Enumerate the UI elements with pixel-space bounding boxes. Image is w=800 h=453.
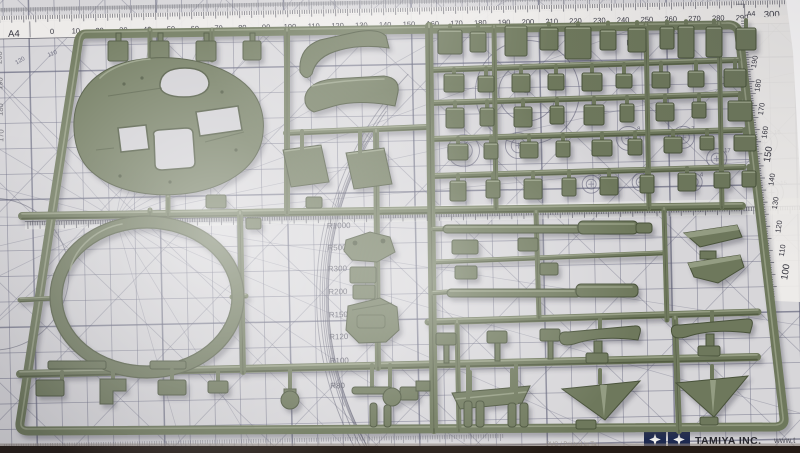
rounded-opening xyxy=(154,128,195,170)
rect-opening xyxy=(196,106,242,136)
part-small-block xyxy=(664,137,682,153)
part-small-block xyxy=(616,74,632,88)
part-small-block xyxy=(448,144,468,160)
part-small-block xyxy=(724,69,746,87)
part-hatch-large xyxy=(346,298,399,343)
part-small-block xyxy=(652,72,670,88)
part-wedge-lower xyxy=(688,255,744,283)
part-small-block xyxy=(512,74,530,92)
part-small-block xyxy=(714,172,730,188)
runner-bar xyxy=(22,206,742,216)
part-small-block xyxy=(620,104,634,122)
part-small-block xyxy=(628,28,646,52)
part-hatch-small xyxy=(344,232,395,262)
part-small-block xyxy=(486,180,500,198)
part-small-block xyxy=(742,171,756,187)
part-small-block xyxy=(582,73,602,91)
part-plate-right xyxy=(346,148,392,189)
part-small-block xyxy=(565,27,591,59)
part-small-block xyxy=(548,74,564,90)
part-small-block xyxy=(350,267,376,283)
part-small-block xyxy=(678,173,696,191)
part-small-block xyxy=(660,27,674,49)
part-small-block xyxy=(416,381,430,391)
part-small-block xyxy=(306,197,322,208)
runner-bar xyxy=(428,312,758,322)
runner-bar xyxy=(433,130,742,139)
part-small-block xyxy=(656,103,674,121)
runner-bar xyxy=(432,60,738,70)
part-small-block xyxy=(470,32,486,52)
part-small-block xyxy=(692,102,706,118)
part-small-block xyxy=(700,136,714,150)
part-small-block xyxy=(518,238,538,251)
part-small-block xyxy=(600,177,618,195)
part-small-block xyxy=(540,28,558,50)
part-turret-ring xyxy=(50,216,244,378)
part-turret-roof xyxy=(74,58,264,195)
part-small-block xyxy=(736,28,756,50)
photo-scene: 50151087172341615 A4 A4 300 010203040506… xyxy=(0,0,800,453)
part-small-block xyxy=(206,195,226,208)
part-small-block xyxy=(455,266,477,279)
part-fender-b xyxy=(305,76,398,112)
part-small-block xyxy=(540,263,558,275)
part-small-block xyxy=(728,101,752,121)
part-fender-a xyxy=(300,31,389,78)
part-ball xyxy=(281,391,299,409)
part-gun-barrel-upper xyxy=(443,221,652,234)
part-small-block xyxy=(628,139,642,155)
part-wing-delta-1 xyxy=(562,370,640,429)
part-small-block xyxy=(734,135,756,151)
sprue-bottom-tabs xyxy=(436,329,560,363)
part-small-block xyxy=(700,251,716,259)
part-small-block xyxy=(562,178,576,196)
part-wedge-upper xyxy=(684,225,742,247)
square-opening xyxy=(118,125,149,152)
model-sprue xyxy=(0,0,800,453)
part-small-block xyxy=(556,141,570,157)
part-small-block xyxy=(520,142,538,158)
part-small-block xyxy=(484,143,498,159)
part-wing-anvil-2 xyxy=(671,312,752,356)
part-small-block xyxy=(353,285,375,299)
part-small-block xyxy=(478,76,494,92)
part-small-block xyxy=(480,108,494,126)
part-small-block xyxy=(600,30,616,50)
part-small-block xyxy=(514,107,532,127)
part-small-block xyxy=(592,140,612,156)
part-ball-joint xyxy=(352,365,418,427)
part-small-block xyxy=(452,240,478,254)
part-plate-left xyxy=(283,145,329,187)
part-small-block xyxy=(446,108,464,128)
hatch-opening xyxy=(160,68,209,97)
part-small-block xyxy=(688,71,704,87)
part-small-block xyxy=(444,74,464,92)
sprue-body xyxy=(20,20,784,433)
runner-bar xyxy=(433,292,447,293)
part-small-block xyxy=(678,26,694,58)
runner-bar xyxy=(434,167,744,176)
part-small-block xyxy=(524,179,542,199)
part-wing-delta-2 xyxy=(676,366,748,425)
part-small-block xyxy=(438,30,462,54)
part-small-block xyxy=(505,26,527,56)
part-small-block xyxy=(450,181,466,201)
part-small-block xyxy=(706,27,722,57)
part-small-block xyxy=(640,175,654,193)
part-small-block xyxy=(246,218,261,229)
part-small-block xyxy=(550,106,564,124)
part-gun-barrel-lower xyxy=(447,284,638,297)
part-small-block xyxy=(584,105,604,125)
